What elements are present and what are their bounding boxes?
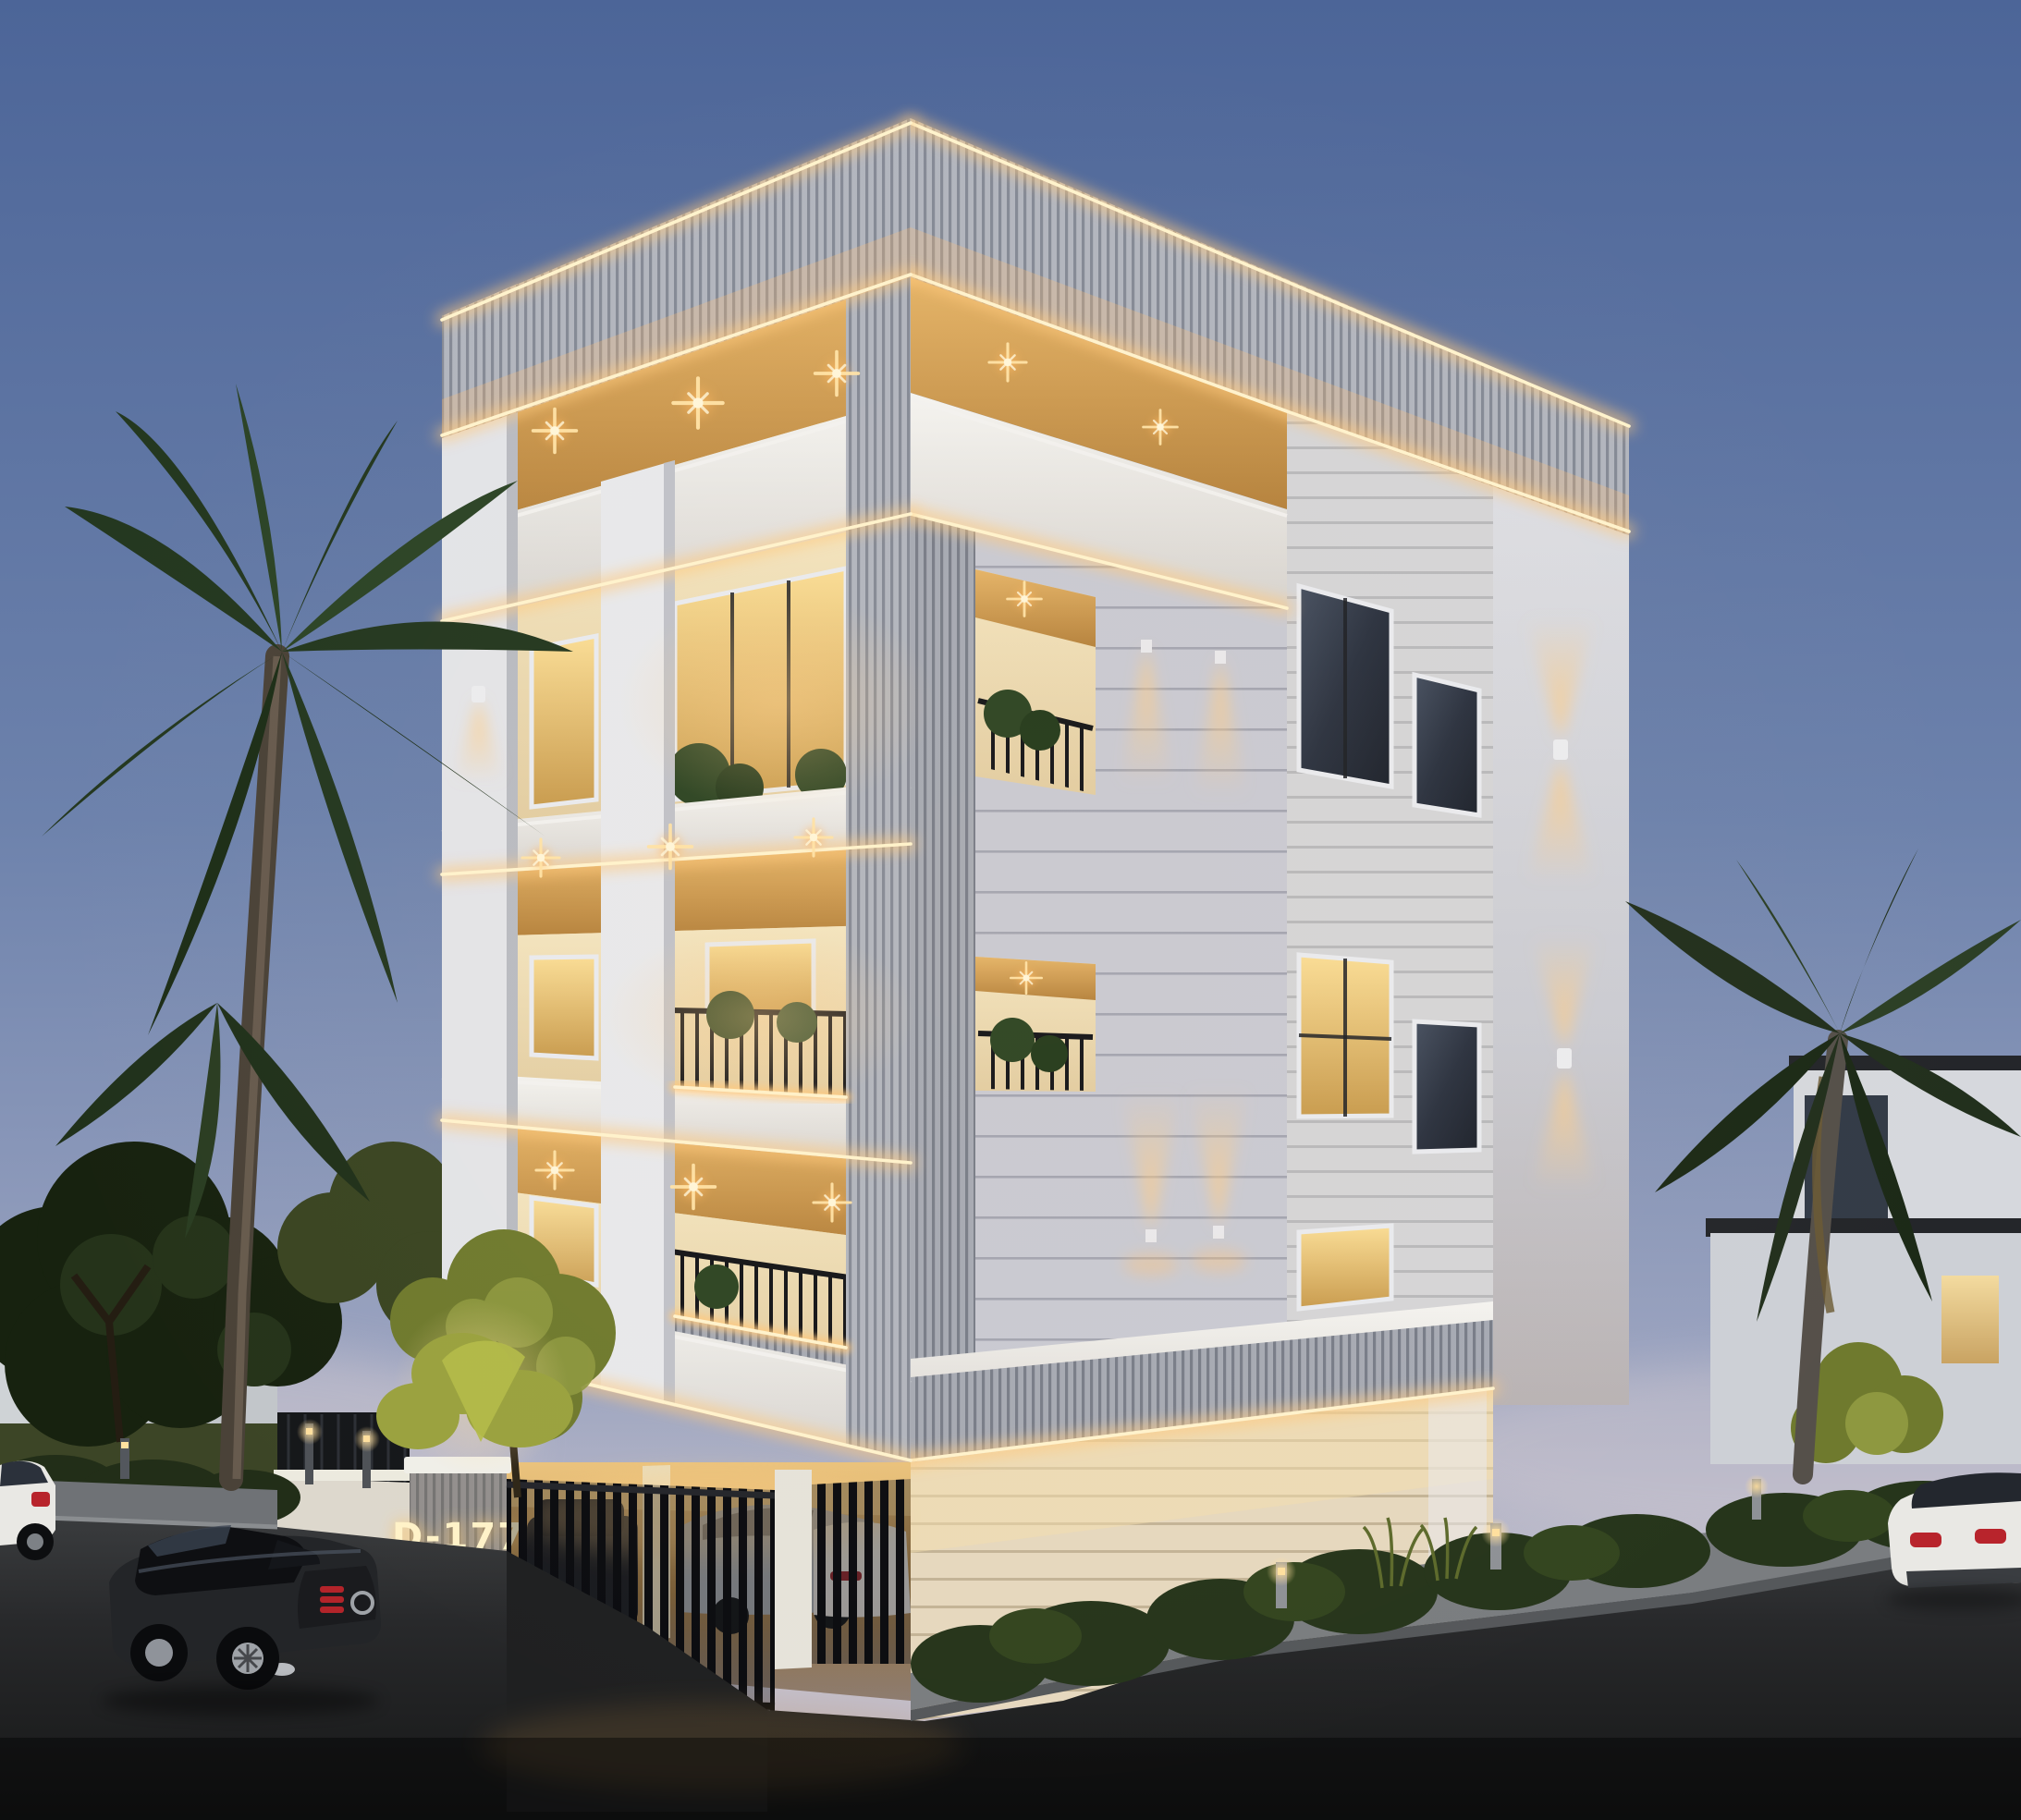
ambient-warmth <box>0 0 2021 1820</box>
scene-render: D-177 D-177 <box>0 0 2021 1820</box>
render-canvas: D-177 D-177 <box>0 0 2021 1820</box>
